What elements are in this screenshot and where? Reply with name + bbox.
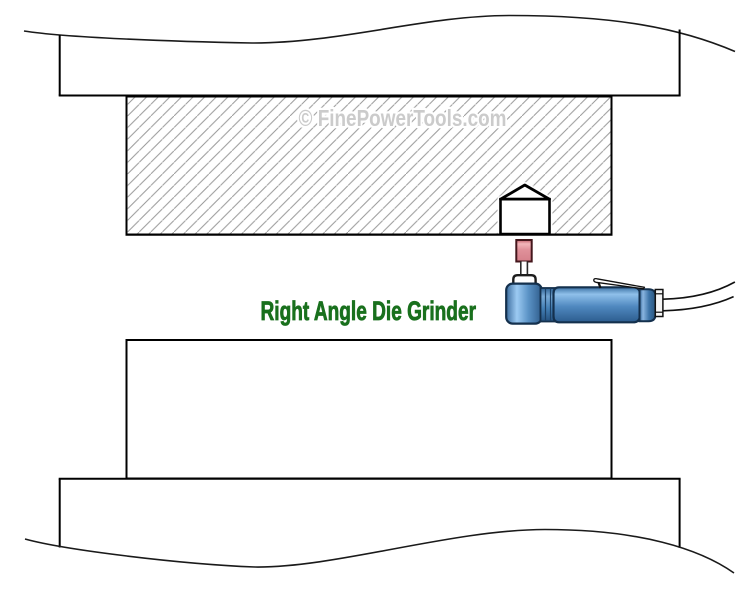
svg-text:Right Angle Die Grinder: Right Angle Die Grinder <box>261 296 477 326</box>
svg-text:© FinePowerTools.com: © FinePowerTools.com <box>299 105 507 131</box>
